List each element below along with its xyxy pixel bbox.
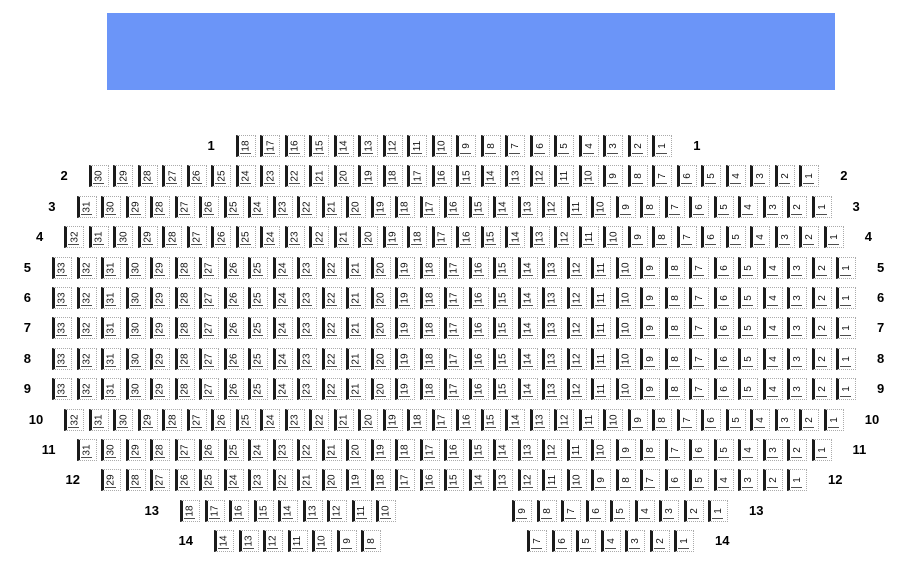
seat[interactable]: 4 <box>714 469 734 491</box>
seat[interactable]: 5 <box>738 257 758 279</box>
seat[interactable]: 13 <box>542 257 562 279</box>
seat[interactable]: 5 <box>726 226 746 248</box>
seat[interactable]: 27 <box>199 317 219 339</box>
seat[interactable]: 32 <box>77 317 97 339</box>
seat[interactable]: 1 <box>708 500 728 522</box>
seat[interactable]: 23 <box>297 287 317 309</box>
seat[interactable]: 15 <box>254 500 274 522</box>
seat[interactable]: 10 <box>616 317 636 339</box>
seat[interactable]: 26 <box>224 378 244 400</box>
seat[interactable]: 26 <box>224 317 244 339</box>
seat[interactable]: 6 <box>714 287 734 309</box>
seat[interactable]: 2 <box>812 378 832 400</box>
seat[interactable]: 28 <box>150 196 170 218</box>
seat[interactable]: 25 <box>224 196 244 218</box>
seat[interactable]: 22 <box>285 165 305 187</box>
seat[interactable]: 6 <box>714 378 734 400</box>
seat[interactable]: 33 <box>52 317 72 339</box>
seat[interactable]: 4 <box>579 135 599 157</box>
seat[interactable]: 16 <box>469 348 489 370</box>
seat[interactable]: 12 <box>518 469 538 491</box>
seat[interactable]: 5 <box>610 500 630 522</box>
seat[interactable]: 4 <box>763 378 783 400</box>
seat[interactable]: 25 <box>248 257 268 279</box>
seat[interactable]: 1 <box>674 530 694 552</box>
seat[interactable]: 14 <box>518 348 538 370</box>
seat[interactable]: 7 <box>689 317 709 339</box>
seat[interactable]: 5 <box>554 135 574 157</box>
seat[interactable]: 1 <box>824 226 844 248</box>
seat[interactable]: 12 <box>542 196 562 218</box>
seat[interactable]: 14 <box>518 257 538 279</box>
seat[interactable]: 3 <box>763 196 783 218</box>
seat[interactable]: 23 <box>297 378 317 400</box>
seat[interactable]: 15 <box>469 439 489 461</box>
seat[interactable]: 2 <box>787 196 807 218</box>
seat[interactable]: 11 <box>591 378 611 400</box>
seat[interactable]: 30 <box>113 226 133 248</box>
seat[interactable]: 17 <box>205 500 225 522</box>
seat[interactable]: 23 <box>260 165 280 187</box>
seat[interactable]: 11 <box>591 317 611 339</box>
seat[interactable]: 14 <box>493 439 513 461</box>
seat[interactable]: 27 <box>199 257 219 279</box>
seat[interactable]: 20 <box>322 469 342 491</box>
seat[interactable]: 20 <box>346 439 366 461</box>
seat[interactable]: 12 <box>383 135 403 157</box>
seat[interactable]: 17 <box>444 317 464 339</box>
seat[interactable]: 15 <box>493 317 513 339</box>
seat[interactable]: 22 <box>322 378 342 400</box>
seat[interactable]: 1 <box>836 317 856 339</box>
seat[interactable]: 8 <box>665 348 685 370</box>
seat[interactable]: 15 <box>481 226 501 248</box>
seat[interactable]: 19 <box>383 409 403 431</box>
seat[interactable]: 6 <box>714 348 734 370</box>
seat[interactable]: 5 <box>714 196 734 218</box>
seat[interactable]: 30 <box>126 287 146 309</box>
seat[interactable]: 29 <box>126 196 146 218</box>
seat[interactable]: 28 <box>175 378 195 400</box>
seat[interactable]: 5 <box>738 287 758 309</box>
seat[interactable]: 8 <box>640 439 660 461</box>
seat[interactable]: 29 <box>126 439 146 461</box>
seat[interactable]: 28 <box>162 409 182 431</box>
seat[interactable]: 22 <box>309 409 329 431</box>
seat[interactable]: 20 <box>371 287 391 309</box>
seat[interactable]: 10 <box>579 165 599 187</box>
seat[interactable]: 12 <box>567 317 587 339</box>
seat[interactable]: 15 <box>309 135 329 157</box>
seat[interactable]: 20 <box>371 378 391 400</box>
seat[interactable]: 5 <box>689 469 709 491</box>
seat[interactable]: 14 <box>469 469 489 491</box>
seat[interactable]: 8 <box>665 317 685 339</box>
seat[interactable]: 9 <box>640 317 660 339</box>
seat[interactable]: 19 <box>395 287 415 309</box>
seat[interactable]: 22 <box>322 348 342 370</box>
seat[interactable]: 19 <box>395 348 415 370</box>
seat[interactable]: 18 <box>420 378 440 400</box>
seat[interactable]: 12 <box>542 439 562 461</box>
seat[interactable]: 4 <box>738 439 758 461</box>
seat[interactable]: 7 <box>640 469 660 491</box>
seat[interactable]: 10 <box>376 500 396 522</box>
seat[interactable]: 29 <box>150 378 170 400</box>
seat[interactable]: 16 <box>469 317 489 339</box>
seat[interactable]: 25 <box>224 439 244 461</box>
seat[interactable]: 21 <box>334 409 354 431</box>
seat[interactable]: 7 <box>665 196 685 218</box>
seat[interactable]: 12 <box>530 165 550 187</box>
seat[interactable]: 4 <box>763 257 783 279</box>
seat[interactable]: 21 <box>322 196 342 218</box>
seat[interactable]: 1 <box>836 287 856 309</box>
seat[interactable]: 30 <box>126 257 146 279</box>
seat[interactable]: 10 <box>591 196 611 218</box>
seat[interactable]: 12 <box>567 378 587 400</box>
seat[interactable]: 11 <box>579 226 599 248</box>
seat[interactable]: 8 <box>628 165 648 187</box>
seat[interactable]: 9 <box>603 165 623 187</box>
seat[interactable]: 10 <box>567 469 587 491</box>
seat[interactable]: 17 <box>395 469 415 491</box>
seat[interactable]: 10 <box>312 530 332 552</box>
seat[interactable]: 29 <box>150 257 170 279</box>
seat[interactable]: 3 <box>787 287 807 309</box>
seat[interactable]: 27 <box>199 378 219 400</box>
seat[interactable]: 15 <box>493 257 513 279</box>
seat[interactable]: 17 <box>444 257 464 279</box>
seat[interactable]: 13 <box>493 469 513 491</box>
seat[interactable]: 3 <box>775 226 795 248</box>
seat[interactable]: 16 <box>469 287 489 309</box>
seat[interactable]: 6 <box>677 165 697 187</box>
seat[interactable]: 16 <box>444 439 464 461</box>
seat[interactable]: 12 <box>263 530 283 552</box>
seat[interactable]: 4 <box>601 530 621 552</box>
seat[interactable]: 9 <box>640 378 660 400</box>
seat[interactable]: 14 <box>518 317 538 339</box>
seat[interactable]: 28 <box>150 439 170 461</box>
seat[interactable]: 12 <box>567 287 587 309</box>
seat[interactable]: 19 <box>395 317 415 339</box>
seat[interactable]: 4 <box>750 409 770 431</box>
seat[interactable]: 9 <box>628 226 648 248</box>
seat[interactable]: 26 <box>224 348 244 370</box>
seat[interactable]: 2 <box>775 165 795 187</box>
seat[interactable]: 29 <box>138 409 158 431</box>
seat[interactable]: 23 <box>297 257 317 279</box>
seat[interactable]: 11 <box>567 196 587 218</box>
seat[interactable]: 27 <box>199 348 219 370</box>
seat[interactable]: 30 <box>113 409 133 431</box>
seat[interactable]: 21 <box>334 226 354 248</box>
seat[interactable]: 20 <box>334 165 354 187</box>
seat[interactable]: 9 <box>640 348 660 370</box>
seat[interactable]: 14 <box>334 135 354 157</box>
seat[interactable]: 18 <box>420 317 440 339</box>
seat[interactable]: 29 <box>150 287 170 309</box>
seat[interactable]: 16 <box>285 135 305 157</box>
seat[interactable]: 31 <box>89 226 109 248</box>
seat[interactable]: 17 <box>407 165 427 187</box>
seat[interactable]: 1 <box>836 348 856 370</box>
seat[interactable]: 25 <box>248 378 268 400</box>
seat[interactable]: 20 <box>371 348 391 370</box>
seat[interactable]: 7 <box>689 257 709 279</box>
seat[interactable]: 24 <box>248 439 268 461</box>
seat[interactable]: 11 <box>567 439 587 461</box>
seat[interactable]: 19 <box>371 439 391 461</box>
seat[interactable]: 8 <box>616 469 636 491</box>
seat[interactable]: 21 <box>346 287 366 309</box>
seat[interactable]: 13 <box>505 165 525 187</box>
seat[interactable]: 2 <box>763 469 783 491</box>
seat[interactable]: 13 <box>530 409 550 431</box>
seat[interactable]: 5 <box>701 165 721 187</box>
seat[interactable]: 23 <box>273 196 293 218</box>
seat[interactable]: 14 <box>278 500 298 522</box>
seat[interactable]: 7 <box>677 409 697 431</box>
seat[interactable]: 31 <box>77 439 97 461</box>
seat[interactable]: 7 <box>689 287 709 309</box>
seat[interactable]: 1 <box>836 257 856 279</box>
seat[interactable]: 3 <box>787 348 807 370</box>
seat[interactable]: 18 <box>383 165 403 187</box>
seat[interactable]: 32 <box>77 287 97 309</box>
seat[interactable]: 21 <box>322 439 342 461</box>
seat[interactable]: 5 <box>738 317 758 339</box>
seat[interactable]: 9 <box>591 469 611 491</box>
seat[interactable]: 31 <box>101 348 121 370</box>
seat[interactable]: 9 <box>512 500 532 522</box>
seat[interactable]: 17 <box>432 226 452 248</box>
seat[interactable]: 29 <box>150 348 170 370</box>
seat[interactable]: 24 <box>273 378 293 400</box>
seat[interactable]: 27 <box>175 196 195 218</box>
seat[interactable]: 22 <box>309 226 329 248</box>
seat[interactable]: 27 <box>150 469 170 491</box>
seat[interactable]: 30 <box>101 439 121 461</box>
seat[interactable]: 17 <box>420 196 440 218</box>
seat[interactable]: 4 <box>763 317 783 339</box>
seat[interactable]: 10 <box>616 287 636 309</box>
seat[interactable]: 30 <box>101 196 121 218</box>
seat[interactable]: 23 <box>297 317 317 339</box>
seat[interactable]: 24 <box>224 469 244 491</box>
seat[interactable]: 17 <box>444 378 464 400</box>
seat[interactable]: 2 <box>799 226 819 248</box>
seat[interactable]: 11 <box>579 409 599 431</box>
seat[interactable]: 3 <box>763 439 783 461</box>
seat[interactable]: 3 <box>603 135 623 157</box>
seat[interactable]: 28 <box>162 226 182 248</box>
seat[interactable]: 18 <box>407 409 427 431</box>
seat[interactable]: 24 <box>260 409 280 431</box>
seat[interactable]: 6 <box>701 226 721 248</box>
seat[interactable]: 26 <box>187 165 207 187</box>
seat[interactable]: 18 <box>371 469 391 491</box>
seat[interactable]: 20 <box>371 317 391 339</box>
seat[interactable]: 19 <box>358 165 378 187</box>
seat[interactable]: 22 <box>322 257 342 279</box>
seat[interactable]: 26 <box>199 439 219 461</box>
seat[interactable]: 31 <box>101 287 121 309</box>
seat[interactable]: 23 <box>285 226 305 248</box>
seat[interactable]: 15 <box>493 378 513 400</box>
seat[interactable]: 10 <box>603 226 623 248</box>
seat[interactable]: 22 <box>322 317 342 339</box>
seat[interactable]: 18 <box>236 135 256 157</box>
seat[interactable]: 29 <box>138 226 158 248</box>
seat[interactable]: 5 <box>576 530 596 552</box>
seat[interactable]: 18 <box>395 196 415 218</box>
seat[interactable]: 6 <box>552 530 572 552</box>
seat[interactable]: 30 <box>89 165 109 187</box>
seat[interactable]: 20 <box>371 257 391 279</box>
seat[interactable]: 28 <box>138 165 158 187</box>
seat[interactable]: 31 <box>101 257 121 279</box>
seat[interactable]: 18 <box>395 439 415 461</box>
seat[interactable]: 6 <box>714 257 734 279</box>
seat[interactable]: 3 <box>787 257 807 279</box>
seat[interactable]: 24 <box>236 165 256 187</box>
seat[interactable]: 13 <box>239 530 259 552</box>
seat[interactable]: 23 <box>285 409 305 431</box>
seat[interactable]: 14 <box>505 409 525 431</box>
seat[interactable]: 21 <box>346 257 366 279</box>
seat[interactable]: 11 <box>591 287 611 309</box>
seat[interactable]: 24 <box>273 257 293 279</box>
seat[interactable]: 13 <box>542 317 562 339</box>
seat[interactable]: 16 <box>456 409 476 431</box>
seat[interactable]: 10 <box>591 439 611 461</box>
seat[interactable]: 3 <box>787 378 807 400</box>
seat[interactable]: 3 <box>738 469 758 491</box>
seat[interactable]: 25 <box>236 226 256 248</box>
seat[interactable]: 3 <box>787 317 807 339</box>
seat[interactable]: 33 <box>52 287 72 309</box>
seat[interactable]: 9 <box>628 409 648 431</box>
seat[interactable]: 2 <box>812 287 832 309</box>
seat[interactable]: 7 <box>665 439 685 461</box>
seat[interactable]: 4 <box>635 500 655 522</box>
seat[interactable]: 6 <box>665 469 685 491</box>
seat[interactable]: 13 <box>542 287 562 309</box>
seat[interactable]: 17 <box>420 439 440 461</box>
seat[interactable]: 28 <box>175 348 195 370</box>
seat[interactable]: 23 <box>297 348 317 370</box>
seat[interactable]: 28 <box>126 469 146 491</box>
seat[interactable]: 29 <box>101 469 121 491</box>
seat[interactable]: 11 <box>407 135 427 157</box>
seat[interactable]: 27 <box>162 165 182 187</box>
seat[interactable]: 7 <box>689 348 709 370</box>
seat[interactable]: 14 <box>505 226 525 248</box>
seat[interactable]: 13 <box>303 500 323 522</box>
seat[interactable]: 12 <box>554 226 574 248</box>
seat[interactable]: 25 <box>248 287 268 309</box>
seat[interactable]: 1 <box>812 439 832 461</box>
seat[interactable]: 10 <box>616 348 636 370</box>
seat[interactable]: 16 <box>229 500 249 522</box>
seat[interactable]: 18 <box>180 500 200 522</box>
seat[interactable]: 11 <box>591 348 611 370</box>
seat[interactable]: 33 <box>52 257 72 279</box>
seat[interactable]: 7 <box>561 500 581 522</box>
seat[interactable]: 10 <box>603 409 623 431</box>
seat[interactable]: 7 <box>689 378 709 400</box>
seat[interactable]: 6 <box>689 196 709 218</box>
seat[interactable]: 7 <box>652 165 672 187</box>
seat[interactable]: 25 <box>199 469 219 491</box>
seat[interactable]: 13 <box>542 348 562 370</box>
seat[interactable]: 18 <box>407 226 427 248</box>
seat[interactable]: 8 <box>361 530 381 552</box>
seat[interactable]: 29 <box>113 165 133 187</box>
seat[interactable]: 1 <box>836 378 856 400</box>
seat[interactable]: 30 <box>126 317 146 339</box>
seat[interactable]: 26 <box>211 409 231 431</box>
seat[interactable]: 14 <box>214 530 234 552</box>
seat[interactable]: 27 <box>199 287 219 309</box>
seat[interactable]: 8 <box>665 378 685 400</box>
seat[interactable]: 16 <box>469 378 489 400</box>
seat[interactable]: 22 <box>273 469 293 491</box>
seat[interactable]: 19 <box>346 469 366 491</box>
seat[interactable]: 6 <box>689 439 709 461</box>
seat[interactable]: 20 <box>346 196 366 218</box>
seat[interactable]: 9 <box>640 287 660 309</box>
seat[interactable]: 5 <box>726 409 746 431</box>
seat[interactable]: 21 <box>346 317 366 339</box>
seat[interactable]: 33 <box>52 348 72 370</box>
seat[interactable]: 10 <box>616 257 636 279</box>
seat[interactable]: 12 <box>554 409 574 431</box>
seat[interactable]: 8 <box>640 196 660 218</box>
seat[interactable]: 21 <box>309 165 329 187</box>
seat[interactable]: 3 <box>625 530 645 552</box>
seat[interactable]: 6 <box>701 409 721 431</box>
seat[interactable]: 19 <box>395 378 415 400</box>
seat[interactable]: 14 <box>518 378 538 400</box>
seat[interactable]: 14 <box>518 287 538 309</box>
seat[interactable]: 25 <box>248 348 268 370</box>
seat[interactable]: 5 <box>738 378 758 400</box>
seat[interactable]: 2 <box>812 257 832 279</box>
seat[interactable]: 19 <box>371 196 391 218</box>
seat[interactable]: 25 <box>248 317 268 339</box>
seat[interactable]: 2 <box>628 135 648 157</box>
seat[interactable]: 27 <box>187 409 207 431</box>
seat[interactable]: 24 <box>260 226 280 248</box>
seat[interactable]: 6 <box>530 135 550 157</box>
seat[interactable]: 2 <box>812 348 832 370</box>
seat[interactable]: 27 <box>175 439 195 461</box>
seat[interactable]: 24 <box>273 287 293 309</box>
seat[interactable]: 15 <box>493 287 513 309</box>
seat[interactable]: 8 <box>652 409 672 431</box>
seat[interactable]: 31 <box>89 409 109 431</box>
seat[interactable]: 11 <box>352 500 372 522</box>
seat[interactable]: 8 <box>665 287 685 309</box>
seat[interactable]: 28 <box>175 317 195 339</box>
seat[interactable]: 19 <box>395 257 415 279</box>
seat[interactable]: 16 <box>456 226 476 248</box>
seat[interactable]: 8 <box>665 257 685 279</box>
seat[interactable]: 27 <box>187 226 207 248</box>
